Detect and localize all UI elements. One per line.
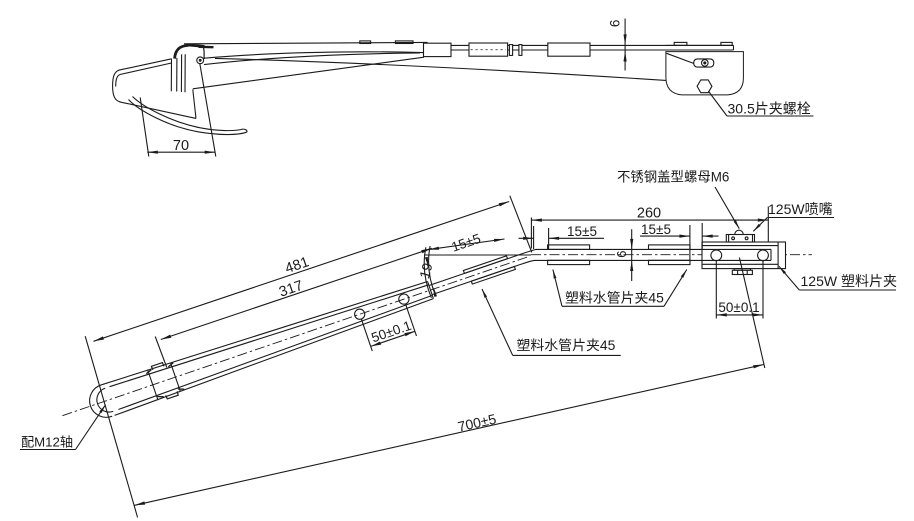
svg-text:317: 317: [277, 278, 305, 301]
svg-text:15±5: 15±5: [567, 224, 597, 239]
svg-text:配M12轴: 配M12轴: [21, 435, 73, 450]
svg-text:50±0.1: 50±0.1: [718, 300, 759, 315]
svg-text:塑料水管片夹45: 塑料水管片夹45: [517, 337, 616, 353]
svg-text:塑料水管片夹45: 塑料水管片夹45: [565, 290, 664, 306]
svg-text:不锈钢盖型螺母M6: 不锈钢盖型螺母M6: [617, 170, 729, 185]
svg-text:481: 481: [283, 254, 311, 277]
svg-text:50±0.1: 50±0.1: [369, 318, 413, 345]
svg-text:125W 塑料片夹: 125W 塑料片夹: [801, 273, 897, 289]
svg-text:70: 70: [173, 138, 189, 154]
svg-text:30.5片夹螺栓: 30.5片夹螺栓: [728, 100, 811, 116]
svg-text:6: 6: [608, 20, 623, 28]
svg-text:19: 19: [416, 261, 436, 280]
svg-text:6: 6: [614, 250, 629, 257]
svg-text:15±5: 15±5: [449, 231, 482, 255]
svg-text:15±5: 15±5: [641, 222, 671, 237]
svg-text:260: 260: [637, 205, 661, 221]
svg-text:700±5: 700±5: [456, 411, 498, 435]
svg-text:125W喷嘴: 125W喷嘴: [768, 201, 833, 217]
